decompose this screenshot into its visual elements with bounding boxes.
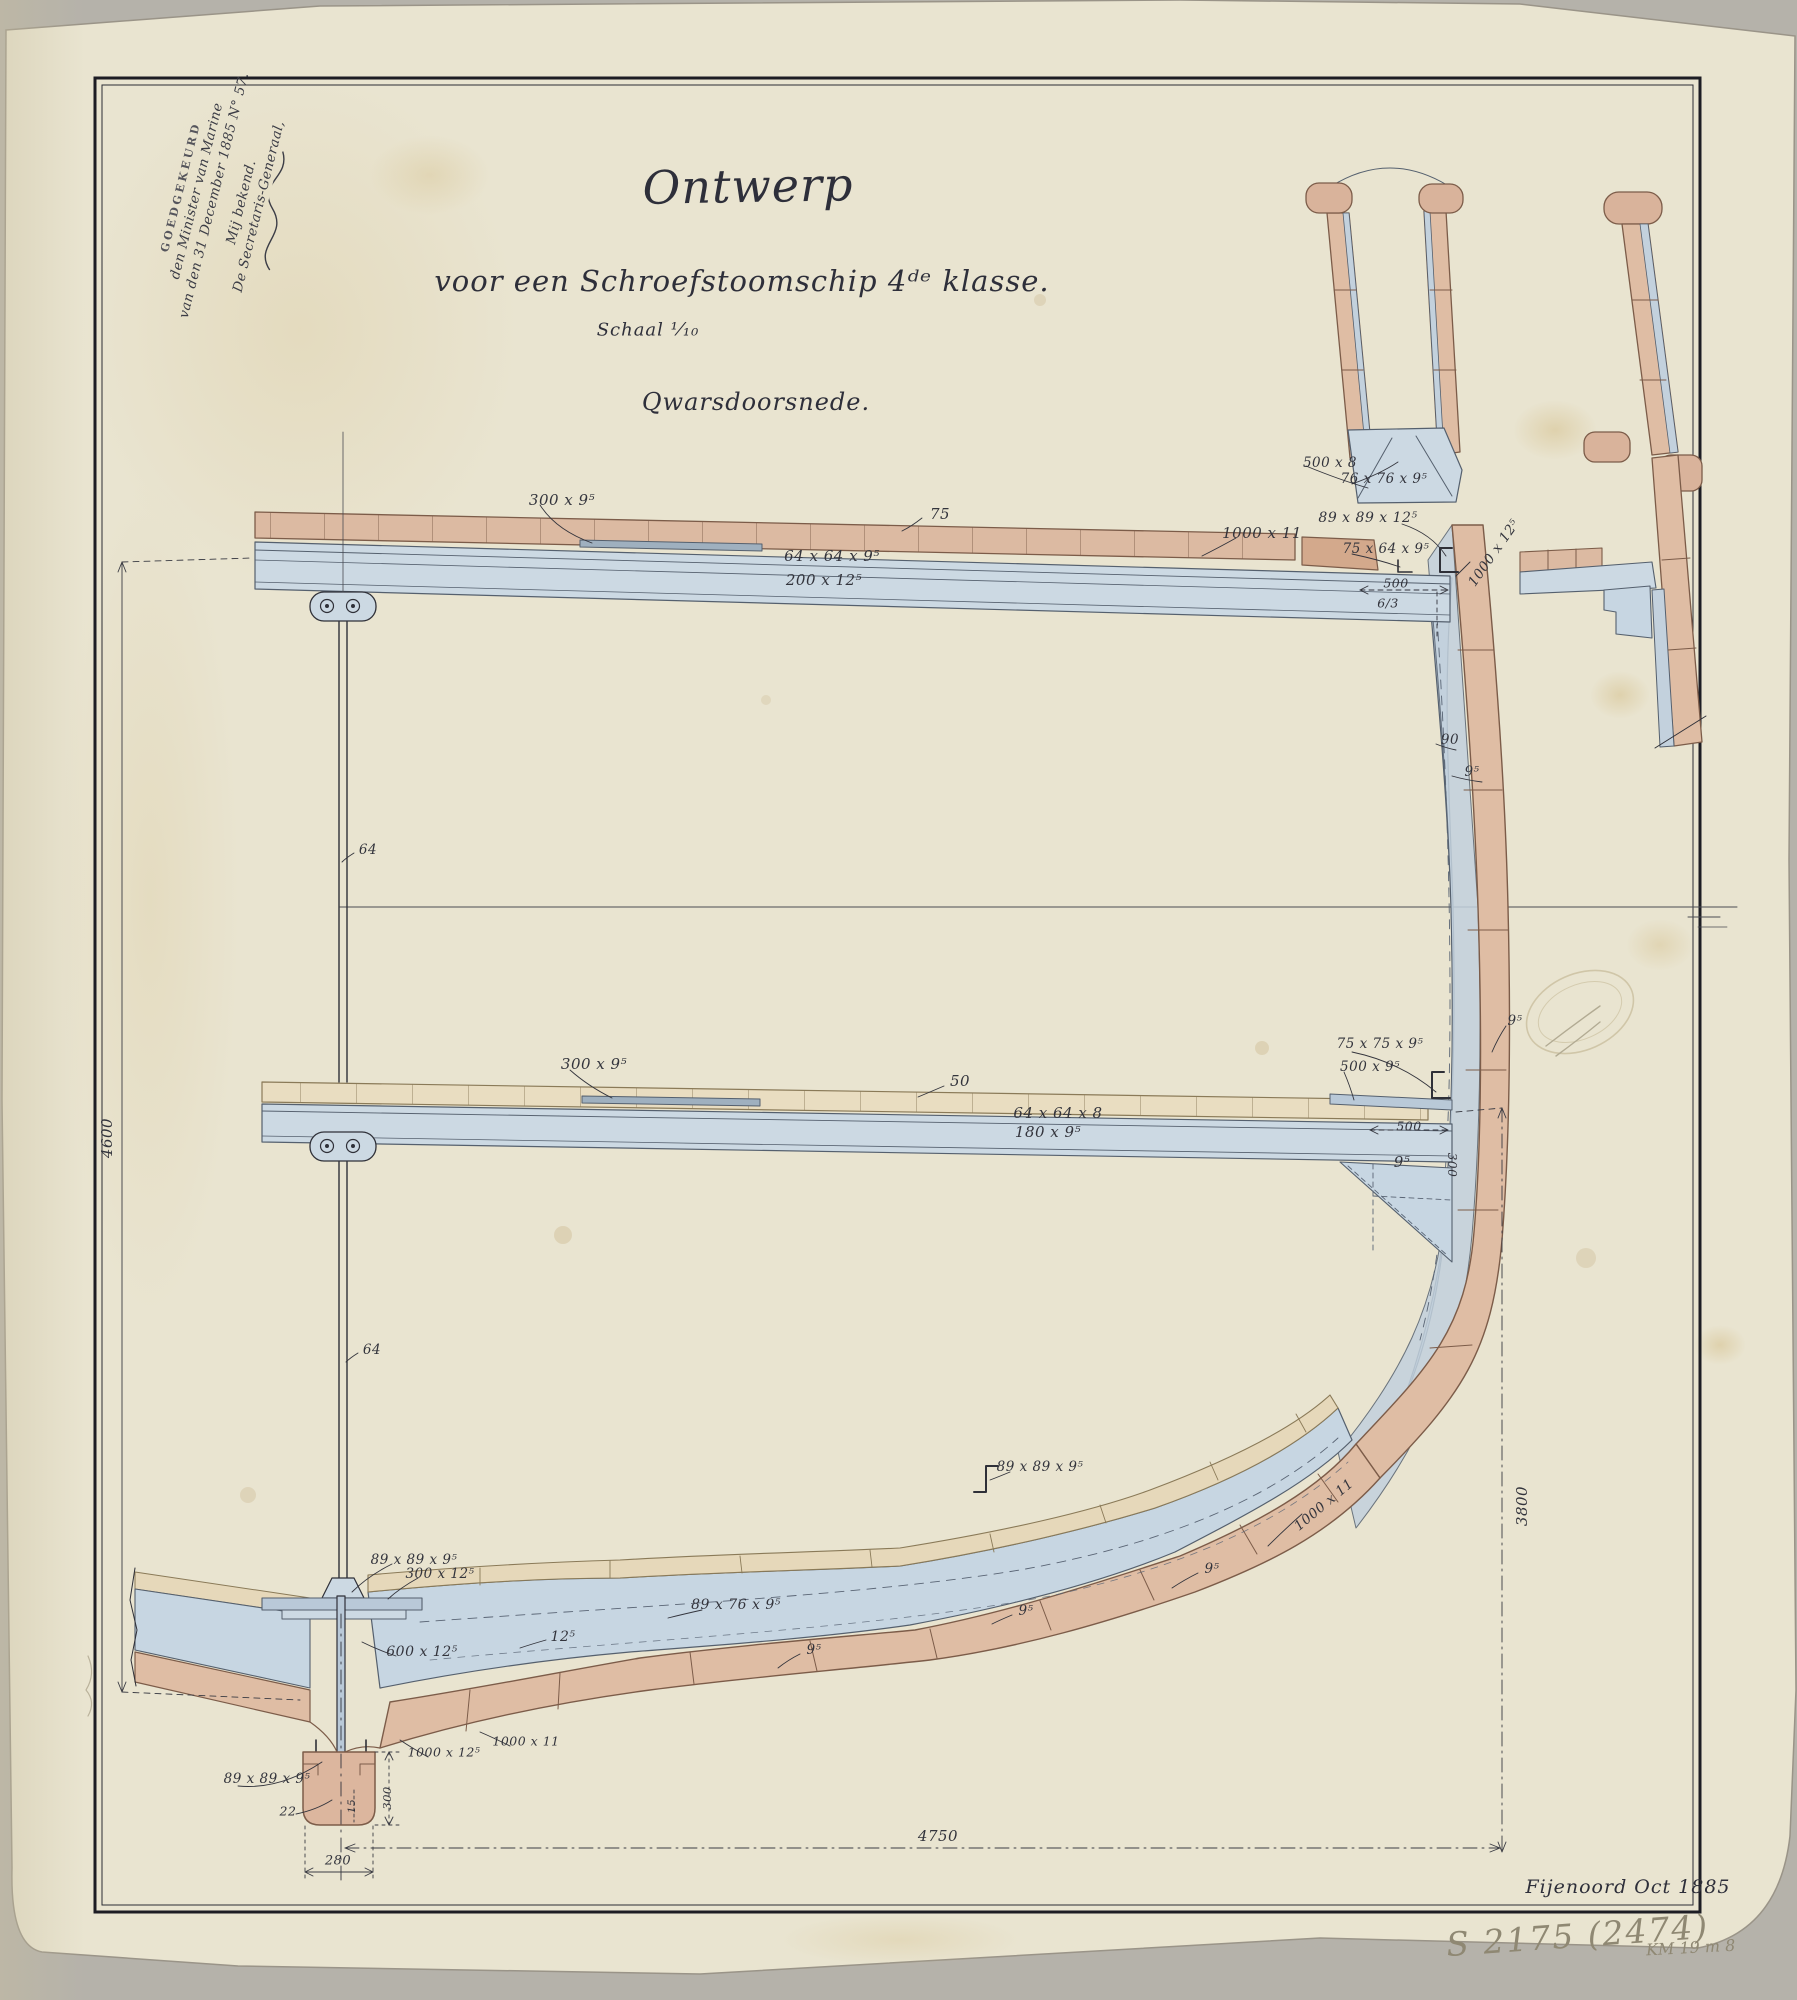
- dimension-label: 75: [930, 505, 950, 523]
- dimension-label: 300: [380, 1786, 394, 1809]
- dimension-label: 50: [950, 1072, 970, 1090]
- dimension-label: 9⁵: [1204, 1561, 1219, 1577]
- dimension-label: 12⁵: [551, 1629, 576, 1645]
- drawing-subtitle: voor een Schroefstoomschip 4ᵈᵉ klasse.: [434, 264, 1049, 298]
- dimension-label: 64 x 64 x 9⁵: [784, 547, 880, 565]
- dimension-label: 22: [280, 1804, 297, 1819]
- signature-place-date: Fijenoord Oct 1885: [1525, 1876, 1730, 1898]
- view-label: Qwarsdoorsnede.: [642, 388, 870, 416]
- dimension-label: 300 x 9⁵: [529, 491, 595, 509]
- dimension-label: 75 x 64 x 9⁵: [1343, 541, 1430, 557]
- dimension-label: 89 x 89 x 9⁵: [997, 1459, 1084, 1475]
- dimension-label: 9⁵: [806, 1642, 821, 1658]
- dimension-label: 3800: [1513, 1486, 1531, 1526]
- dimension-label: 280: [325, 1854, 351, 1869]
- drawing-title: Ontwerp: [642, 157, 854, 215]
- dimension-label: 6/3: [1377, 596, 1399, 611]
- dimension-label: 600 x 12⁵: [386, 1644, 457, 1660]
- dimension-label: 9⁵: [1018, 1603, 1033, 1619]
- dimension-label: 89 x 76 x 9⁵: [691, 1597, 781, 1613]
- scale-note: Schaal ¹⁄₁₀: [597, 320, 700, 341]
- dimension-label: 1000 x 11: [492, 1734, 559, 1749]
- dimension-label: 4750: [918, 1827, 958, 1845]
- dimension-label: 500: [1396, 1119, 1421, 1134]
- dimension-label: 300 x 9⁵: [561, 1055, 627, 1073]
- dimension-label: 64: [363, 1342, 381, 1358]
- dimension-label: 89 x 89 x 9⁵: [224, 1771, 311, 1787]
- dimension-label: 9⁵: [1464, 764, 1479, 780]
- dimension-label: 75 x 75 x 9⁵: [1337, 1036, 1424, 1052]
- dimension-label: 64: [359, 842, 377, 858]
- dimension-label: 89 x 89 x 12⁵: [1318, 510, 1417, 526]
- photographed-drawing: Ontwerp voor een Schroefstoomschip 4ᵈᵉ k…: [0, 0, 1797, 2000]
- dimension-label: 200 x 12⁵: [786, 571, 862, 589]
- dimension-label: 9⁵: [1394, 1153, 1411, 1171]
- dimension-label: 1000 x 12⁵: [408, 1745, 481, 1760]
- dimension-label: 300 x 12⁵: [405, 1566, 474, 1582]
- dimension-label: 4600: [98, 1118, 116, 1158]
- dimension-label: 1000 x 11: [1222, 524, 1302, 542]
- dimension-label: 500 x 9⁵: [1340, 1059, 1400, 1075]
- dimension-label: 15: [346, 1799, 358, 1813]
- dimension-label: 64 x 64 x 8: [1013, 1104, 1102, 1122]
- dimension-label: 300: [1445, 1153, 1459, 1177]
- dimension-label: 76 x 76 x 9⁵: [1341, 471, 1428, 487]
- dimension-label: 180 x 9⁵: [1015, 1123, 1081, 1141]
- dimension-label: 90: [1441, 732, 1459, 748]
- dimension-label: 500 x 8: [1303, 455, 1357, 471]
- dimension-label: 9⁵: [1507, 1013, 1522, 1029]
- dimension-label: 500: [1383, 576, 1408, 591]
